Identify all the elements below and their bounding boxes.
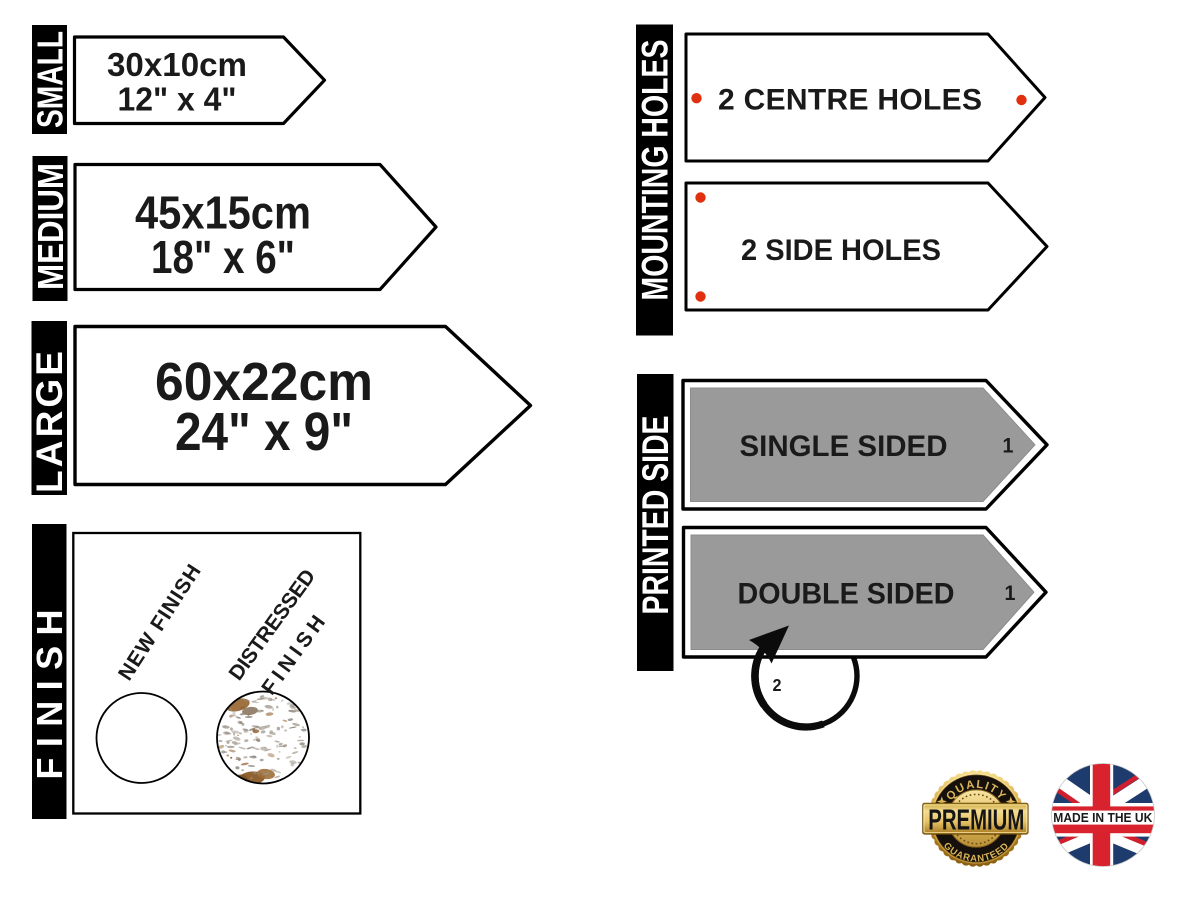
svg-text:1: 1 <box>1005 582 1016 605</box>
svg-text:LARGE: LARGE <box>29 351 70 493</box>
svg-text:24" x 9": 24" x 9" <box>175 402 353 462</box>
svg-text:DOUBLE SIDED: DOUBLE SIDED <box>738 578 955 611</box>
svg-text:18" x 6": 18" x 6" <box>151 231 295 283</box>
svg-text:2 SIDE HOLES: 2 SIDE HOLES <box>741 234 941 267</box>
svg-text:SMALL: SMALL <box>30 31 71 128</box>
svg-text:MEDIUM: MEDIUM <box>30 163 71 290</box>
svg-text:2 CENTRE HOLES: 2 CENTRE HOLES <box>718 83 982 116</box>
svg-text:12" x 4": 12" x 4" <box>118 81 237 118</box>
svg-text:SINGLE SIDED: SINGLE SIDED <box>740 430 948 463</box>
svg-text:1: 1 <box>1003 435 1014 458</box>
svg-text:MADE IN THE UK: MADE IN THE UK <box>1053 811 1152 825</box>
svg-text:MOUNTING HOLES: MOUNTING HOLES <box>635 40 676 301</box>
svg-text:2: 2 <box>773 675 782 695</box>
svg-text:PRINTED SIDE: PRINTED SIDE <box>635 416 676 615</box>
svg-text:30x10cm: 30x10cm <box>107 46 247 83</box>
svg-text:PREMIUM: PREMIUM <box>928 804 1024 836</box>
